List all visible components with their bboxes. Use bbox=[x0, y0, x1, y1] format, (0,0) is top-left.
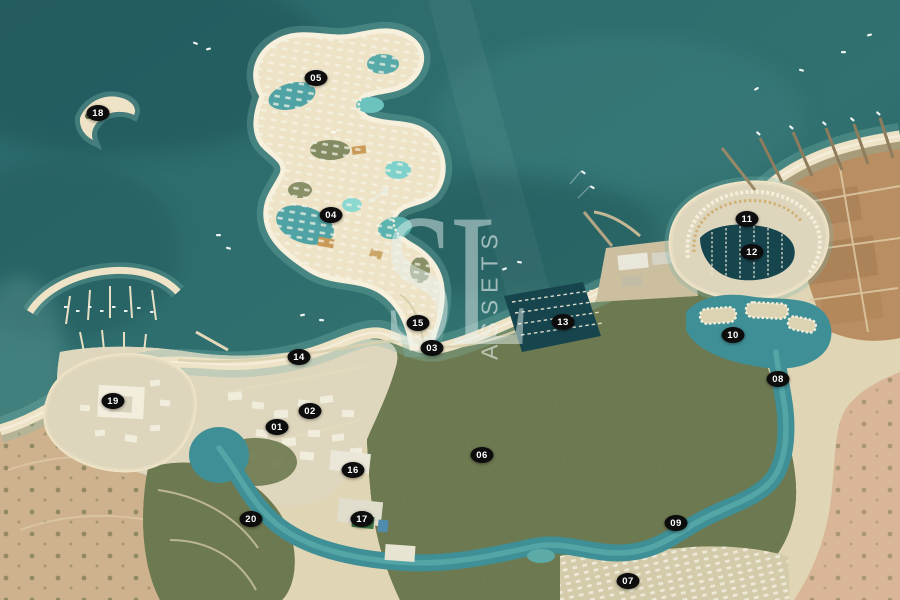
map-marker-07: 07 bbox=[617, 573, 640, 589]
map-marker-11: 11 bbox=[736, 211, 759, 227]
map-marker-15: 15 bbox=[407, 315, 430, 331]
map-marker-03: 03 bbox=[421, 340, 444, 356]
masterplan-map: SL ASSETS 010203040506070809101112131415… bbox=[0, 0, 900, 600]
map-marker-09: 09 bbox=[665, 515, 688, 531]
map-marker-18: 18 bbox=[87, 105, 110, 121]
map-marker-19: 19 bbox=[102, 393, 125, 409]
map-marker-05: 05 bbox=[305, 70, 328, 86]
map-artwork bbox=[0, 0, 900, 600]
map-marker-02: 02 bbox=[299, 403, 322, 419]
map-marker-12: 12 bbox=[741, 244, 764, 260]
map-marker-04: 04 bbox=[320, 207, 343, 223]
map-marker-10: 10 bbox=[722, 327, 745, 343]
map-marker-20: 20 bbox=[240, 511, 263, 527]
map-marker-08: 08 bbox=[767, 371, 790, 387]
map-marker-01: 01 bbox=[266, 419, 289, 435]
map-marker-13: 13 bbox=[552, 314, 575, 330]
map-marker-16: 16 bbox=[342, 462, 365, 478]
map-marker-17: 17 bbox=[351, 511, 374, 527]
map-marker-06: 06 bbox=[471, 447, 494, 463]
marina-village bbox=[671, 182, 828, 298]
map-marker-14: 14 bbox=[288, 349, 311, 365]
